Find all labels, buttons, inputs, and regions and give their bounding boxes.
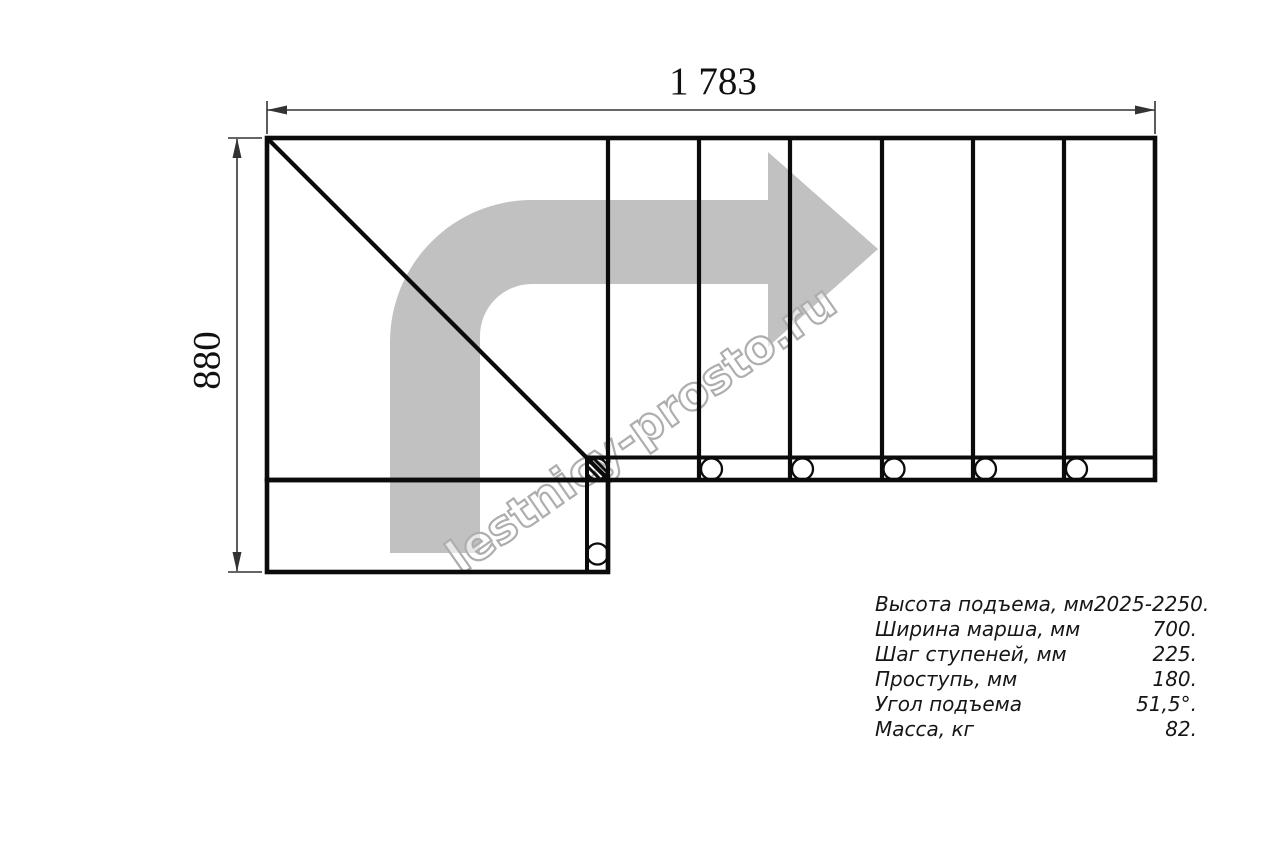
spec-row-step-pitch: Шаг ступеней, мм 225. bbox=[875, 642, 1197, 667]
dimension-lines bbox=[228, 101, 1155, 572]
specs-table: Высота подъема, мм 2025-2250. Ширина мар… bbox=[875, 592, 1197, 742]
spec-label: Ширина марша, мм bbox=[875, 617, 1080, 642]
spec-value: 225. bbox=[1152, 642, 1197, 667]
spec-row-rise-height: Высота подъема, мм 2025-2250. bbox=[875, 592, 1197, 617]
spec-value: 180. bbox=[1152, 667, 1197, 692]
spec-value: 700. bbox=[1152, 617, 1197, 642]
spec-value: 82. bbox=[1165, 717, 1197, 742]
spec-value: 2025-2250. bbox=[1094, 592, 1209, 617]
side-dimension-value: 880 bbox=[188, 301, 227, 421]
spec-label: Шаг ступеней, мм bbox=[875, 642, 1067, 667]
spec-label: Масса, кг bbox=[875, 717, 974, 742]
spec-label: Угол подъема bbox=[875, 692, 1022, 717]
direction-turn-arrow-icon bbox=[390, 152, 878, 553]
top-dimension-value: 1 783 bbox=[613, 62, 813, 101]
staircase-plan-drawing: lestnicy-prosto.ru bbox=[0, 0, 1280, 853]
spec-row-tread-depth: Проступь, мм 180. bbox=[875, 667, 1197, 692]
spec-value: 51,5°. bbox=[1136, 692, 1197, 717]
top-dimension-line bbox=[267, 101, 1155, 134]
dim-arrow-up-icon bbox=[233, 138, 242, 158]
spec-label: Проступь, мм bbox=[875, 667, 1017, 692]
dim-arrow-right-icon bbox=[1135, 106, 1155, 115]
dim-arrow-down-icon bbox=[233, 552, 242, 572]
spec-row-flight-width: Ширина марша, мм 700. bbox=[875, 617, 1197, 642]
left-dimension-line bbox=[228, 138, 262, 572]
spec-row-rise-angle: Угол подъема 51,5°. bbox=[875, 692, 1197, 717]
dim-arrow-left-icon bbox=[267, 106, 287, 115]
spec-row-mass: Масса, кг 82. bbox=[875, 717, 1197, 742]
watermark-text: lestnicy-prosto.ru bbox=[436, 274, 846, 583]
spec-label: Высота подъема, мм bbox=[875, 592, 1094, 617]
baluster-circles bbox=[587, 459, 1088, 565]
